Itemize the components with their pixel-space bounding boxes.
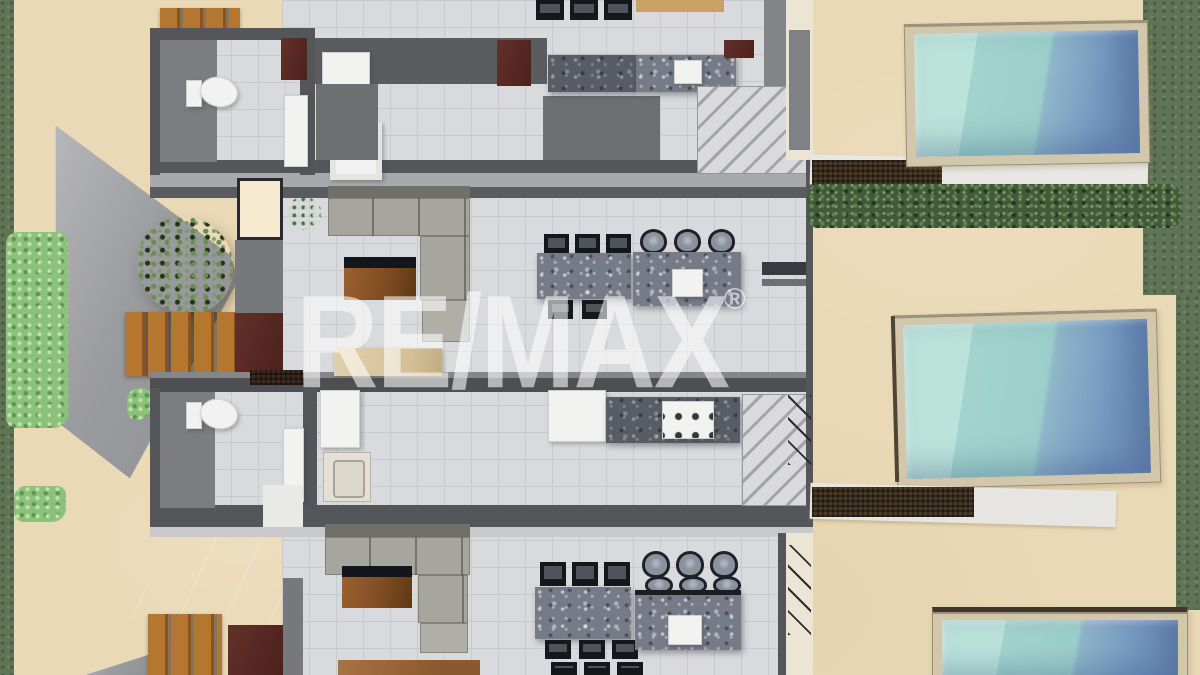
ac-unit-b [762,262,810,275]
pool-2 [893,309,1161,490]
pool-3 [932,607,1188,675]
bar-stool-d2 [676,551,704,578]
door-lintel-a1 [281,38,307,80]
wall-column-b [235,240,283,313]
dining-chair-d2 [572,562,598,586]
dining-chair-d7 [551,662,577,675]
bar-stool-d3 [710,551,738,578]
bathroom-partition-lower [303,388,317,508]
plant-b [288,197,322,230]
walkway-strip-3 [150,527,813,537]
grass-right-bottom [1176,295,1200,610]
bathroom-sink-upper [284,95,308,167]
washer-door-c [333,460,365,498]
entry-door-b [235,313,283,372]
island-sink-b [672,269,703,297]
entry-door-d [228,625,283,675]
bar-stool-b2 [674,229,701,254]
tree-patio-upper [137,217,233,314]
sofa-chaise-b [422,300,470,342]
gas-stove-c [662,401,714,439]
cabinet-shadow-a [316,84,378,160]
sofa-corner-d [418,575,468,623]
coffee-table-d [342,577,412,608]
hedge-strip-top [808,184,1180,228]
bathroom-wall-left [150,28,160,175]
render-scene: RE/MAX ® [0,0,1200,675]
wall-white-d [263,485,303,527]
tv-console-top-d [342,566,412,577]
dining-chair-b2 [575,234,600,255]
bathroom-wall-left-c [150,388,160,508]
side-table-b [334,348,442,376]
dining-chair-a2 [570,0,598,20]
sofa-back-b [328,186,470,198]
dining-table-a [636,0,724,12]
kitchen-counter-shadow-a [543,96,660,160]
dining-chair-d8 [584,662,610,675]
pantry-brown-a [497,40,531,86]
pool-2-water [903,319,1151,479]
bar-stool-b1 [640,229,667,254]
dining-chair-d5 [579,640,605,659]
dining-chair-a1 [536,0,564,20]
island-sink-d [668,615,702,645]
bar-stool-b3 [708,229,735,254]
dining-table-b [537,253,631,299]
dining-chair-d4 [545,640,571,659]
dining-chair-d3 [604,562,630,586]
wall-column-d [283,578,303,675]
coffee-table-b [344,268,416,300]
sofa-chaise-d [420,623,468,653]
pool-3-water [942,620,1178,675]
grass-right-top [1143,0,1200,295]
wood-deck-bottom [148,614,222,675]
kitchen-sink-a [674,60,702,84]
dining-chair-b1 [544,234,569,255]
dining-chair-a3 [604,0,632,20]
refrigerator-c [548,390,606,442]
dining-wood-table-d [338,660,480,675]
kitchen-counter-a-left [548,55,636,92]
roof-corner-bottom-left [85,638,155,675]
pantry-brown-a2 [724,40,754,58]
wood-deck-middle [125,312,237,376]
exterior-stair-wall [789,30,810,150]
dining-chair-b3 [606,234,631,255]
linen-cabinet-c [320,390,360,448]
shelf-brown-c [250,370,303,385]
window-b [237,178,283,240]
bar-stool-d1 [642,551,670,578]
dining-chair-b4 [548,300,573,319]
sofa-back-d [325,524,470,537]
pool-1 [904,20,1150,167]
right-wall-d [778,533,786,675]
dining-chair-d9 [617,662,643,675]
sofa-corner-b [420,236,470,300]
exterior-stair-marks-1 [788,395,811,465]
bush-column-left [6,232,68,428]
pergola-middle [812,487,974,517]
sofa-seat-b [328,198,470,236]
bush-sprig [127,388,151,420]
pool-1-water [914,30,1140,157]
divider-wall-3 [150,505,813,527]
dining-chair-b5 [582,300,607,319]
ac-shadow-b [762,279,810,286]
bush-small-left [14,486,66,522]
dining-table-d [535,587,631,639]
dining-chair-d1 [540,562,566,586]
exterior-stair-marks-2 [788,545,811,635]
